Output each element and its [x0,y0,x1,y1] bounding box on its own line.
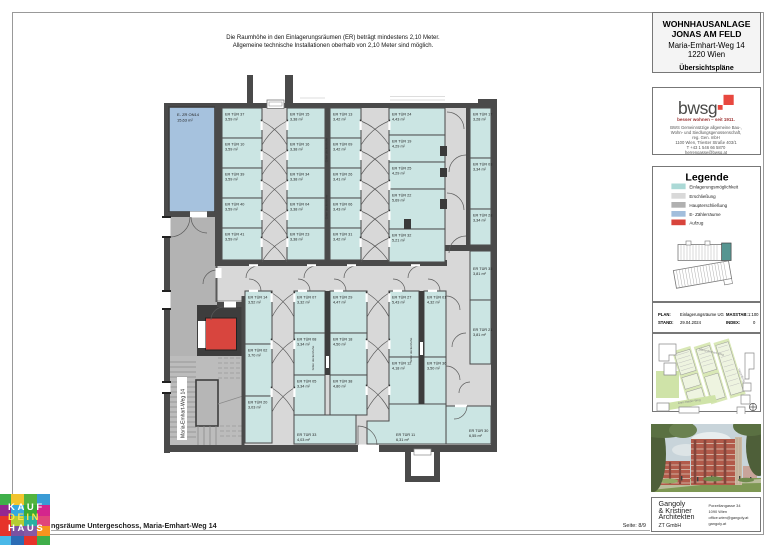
svg-text:ER TÜR 27: ER TÜR 27 [392,296,411,300]
svg-text:3,28 m²: 3,28 m² [473,118,487,122]
svg-text:ER TÜR 23: ER TÜR 23 [290,233,309,237]
svg-text:besser wohnen – seit 1911.: besser wohnen – seit 1911. [677,117,735,122]
svg-text:4,47 m²: 4,47 m² [333,301,347,305]
svg-text:herrengasse@bwsg.at: herrengasse@bwsg.at [685,150,728,154]
svg-text:ER TÜR 26: ER TÜR 26 [333,173,352,177]
svg-text:5,21 m²: 5,21 m² [392,239,406,243]
svg-text:ER TÜR 21: ER TÜR 21 [473,328,492,332]
svg-text:Legende: Legende [685,172,728,184]
svg-text:4,50 m²: 4,50 m² [333,343,347,347]
svg-text:3,50 m²: 3,50 m² [427,367,441,371]
svg-text:ER TÜR 22: ER TÜR 22 [392,194,411,198]
svg-text:3,59 m²: 3,59 m² [225,208,239,212]
svg-text:4,80 m²: 4,80 m² [333,385,347,389]
svg-text:ER TÜR 36: ER TÜR 36 [427,362,446,366]
svg-text:ER TÜR 33: ER TÜR 33 [297,433,316,437]
svg-text:ER TÜR 10: ER TÜR 10 [225,143,244,147]
svg-text:ER TÜR 03: ER TÜR 03 [473,163,492,167]
svg-text:ER TÜR 09: ER TÜR 09 [333,143,352,147]
svg-text:ER TÜR 30: ER TÜR 30 [469,429,488,433]
svg-text:3,43 m²: 3,43 m² [333,208,347,212]
svg-text:3,32 m²: 3,32 m² [297,301,311,305]
svg-text:ER TÜR 32: ER TÜR 32 [392,234,411,238]
svg-text:3,59 m²: 3,59 m² [225,238,239,242]
svg-text:Erschließung: Erschließung [689,194,716,199]
svg-text:5,69 m²: 5,69 m² [392,199,406,203]
svg-text:3,38 m²: 3,38 m² [290,148,304,152]
svg-text:ER TÜR 25: ER TÜR 25 [392,167,411,171]
svg-text:ER TÜR 11: ER TÜR 11 [396,433,415,437]
svg-text:Einlagerungsmöglichkeit: Einlagerungsmöglichkeit [689,185,739,190]
svg-text:6,31 m²: 6,31 m² [396,438,410,442]
svg-text:ER TÜR 18: ER TÜR 18 [333,338,352,342]
svg-text:ER TÜR 20: ER TÜR 20 [248,401,267,405]
svg-text:Aufzug: Aufzug [689,221,704,226]
svg-text:ER TÜR 06: ER TÜR 06 [333,203,352,207]
svg-text:3,59 m²: 3,59 m² [225,178,239,182]
svg-text:ER TÜR 14: ER TÜR 14 [248,296,267,300]
svg-text:ER TÜR 15: ER TÜR 15 [290,113,309,117]
svg-text:3,38 m²: 3,38 m² [290,208,304,212]
svg-text:Gitter deckenhohe: Gitter deckenhohe [325,194,329,219]
svg-text:4,29 m²: 4,29 m² [392,172,406,176]
svg-text:4,03 m²: 4,03 m² [297,438,311,442]
svg-text:ER TÜR 28: ER TÜR 28 [473,214,492,218]
svg-text:ER TÜR 38: ER TÜR 38 [333,380,352,384]
svg-text:3,81 m²: 3,81 m² [473,272,487,276]
svg-text:4,29 m²: 4,29 m² [392,145,406,149]
svg-text:3,59 m²: 3,59 m² [225,148,239,152]
svg-text:15,63 m²: 15,63 m² [177,118,193,123]
svg-text:ER TÜR 01: ER TÜR 01 [427,296,446,300]
svg-text:4,32 m²: 4,32 m² [427,301,441,305]
svg-text:ER TÜR 02: ER TÜR 02 [248,349,267,353]
svg-text:ER TÜR 08: ER TÜR 08 [297,338,316,342]
svg-text:3,42 m²: 3,42 m² [333,148,347,152]
svg-text:ER TÜR 17: ER TÜR 17 [473,113,492,117]
svg-text:Gitter deckenhohe: Gitter deckenhohe [311,345,315,370]
svg-text:6,55 m²: 6,55 m² [469,434,483,438]
svg-text:ER TÜR 34: ER TÜR 34 [290,173,309,177]
svg-text:ER TÜR 05: ER TÜR 05 [297,380,316,384]
svg-text:ER TÜR 37: ER TÜR 37 [225,113,244,117]
svg-text:3,34 m²: 3,34 m² [297,343,311,347]
svg-text:bwsg: bwsg [678,98,717,118]
svg-text:Gitter deckenhohe: Gitter deckenhohe [325,137,329,162]
svg-text:3,34 m²: 3,34 m² [473,219,487,223]
svg-text:Haupterschließung: Haupterschließung [689,203,727,208]
svg-text:Maria-Emhart-Weg 14: Maria-Emhart-Weg 14 [181,389,187,438]
svg-text:3,42 m²: 3,42 m² [333,118,347,122]
svg-text:ER TÜR 39: ER TÜR 39 [225,173,244,177]
svg-text:3,34 m²: 3,34 m² [297,385,311,389]
svg-text:4,18 m²: 4,18 m² [392,367,406,371]
svg-text:ER TÜR 13: ER TÜR 13 [333,113,352,117]
svg-text:ER TÜR 07: ER TÜR 07 [297,296,316,300]
svg-text:3,38 m²: 3,38 m² [290,238,304,242]
svg-text:ER TÜR 29: ER TÜR 29 [333,296,352,300]
svg-text:ER TÜR 04: ER TÜR 04 [290,203,309,207]
svg-text:3,34 m²: 3,34 m² [473,168,487,172]
svg-text:3,52 m²: 3,52 m² [248,301,262,305]
svg-text:3,70 m²: 3,70 m² [248,354,262,358]
svg-text:5,43 m²: 5,43 m² [392,301,406,305]
svg-text:4,43 m²: 4,43 m² [392,118,406,122]
svg-text:E- Zählerräume: E- Zählerräume [689,212,721,217]
svg-text:ER TÜR 35: ER TÜR 35 [473,267,492,271]
svg-text:ER TÜR 24: ER TÜR 24 [392,113,411,117]
svg-text:ER TÜR 40: ER TÜR 40 [225,203,244,207]
svg-text:3,38 m²: 3,38 m² [290,118,304,122]
svg-text:3,41 m²: 3,41 m² [333,178,347,182]
svg-text:3,42 m²: 3,42 m² [333,238,347,242]
svg-text:ER TÜR 41: ER TÜR 41 [225,233,244,237]
svg-text:Gitter deckenhohe: Gitter deckenhohe [409,337,413,362]
svg-text:3,03 m²: 3,03 m² [248,406,262,410]
svg-text:ER TÜR 16: ER TÜR 16 [290,143,309,147]
svg-text:3,81 m²: 3,81 m² [473,333,487,337]
svg-text:E- ZR ON14: E- ZR ON14 [177,112,200,117]
svg-text:ER TÜR 19: ER TÜR 19 [392,140,411,144]
svg-text:ER TÜR 31: ER TÜR 31 [333,233,352,237]
svg-text:3,38 m²: 3,38 m² [290,178,304,182]
svg-text:3,59 m²: 3,59 m² [225,118,239,122]
